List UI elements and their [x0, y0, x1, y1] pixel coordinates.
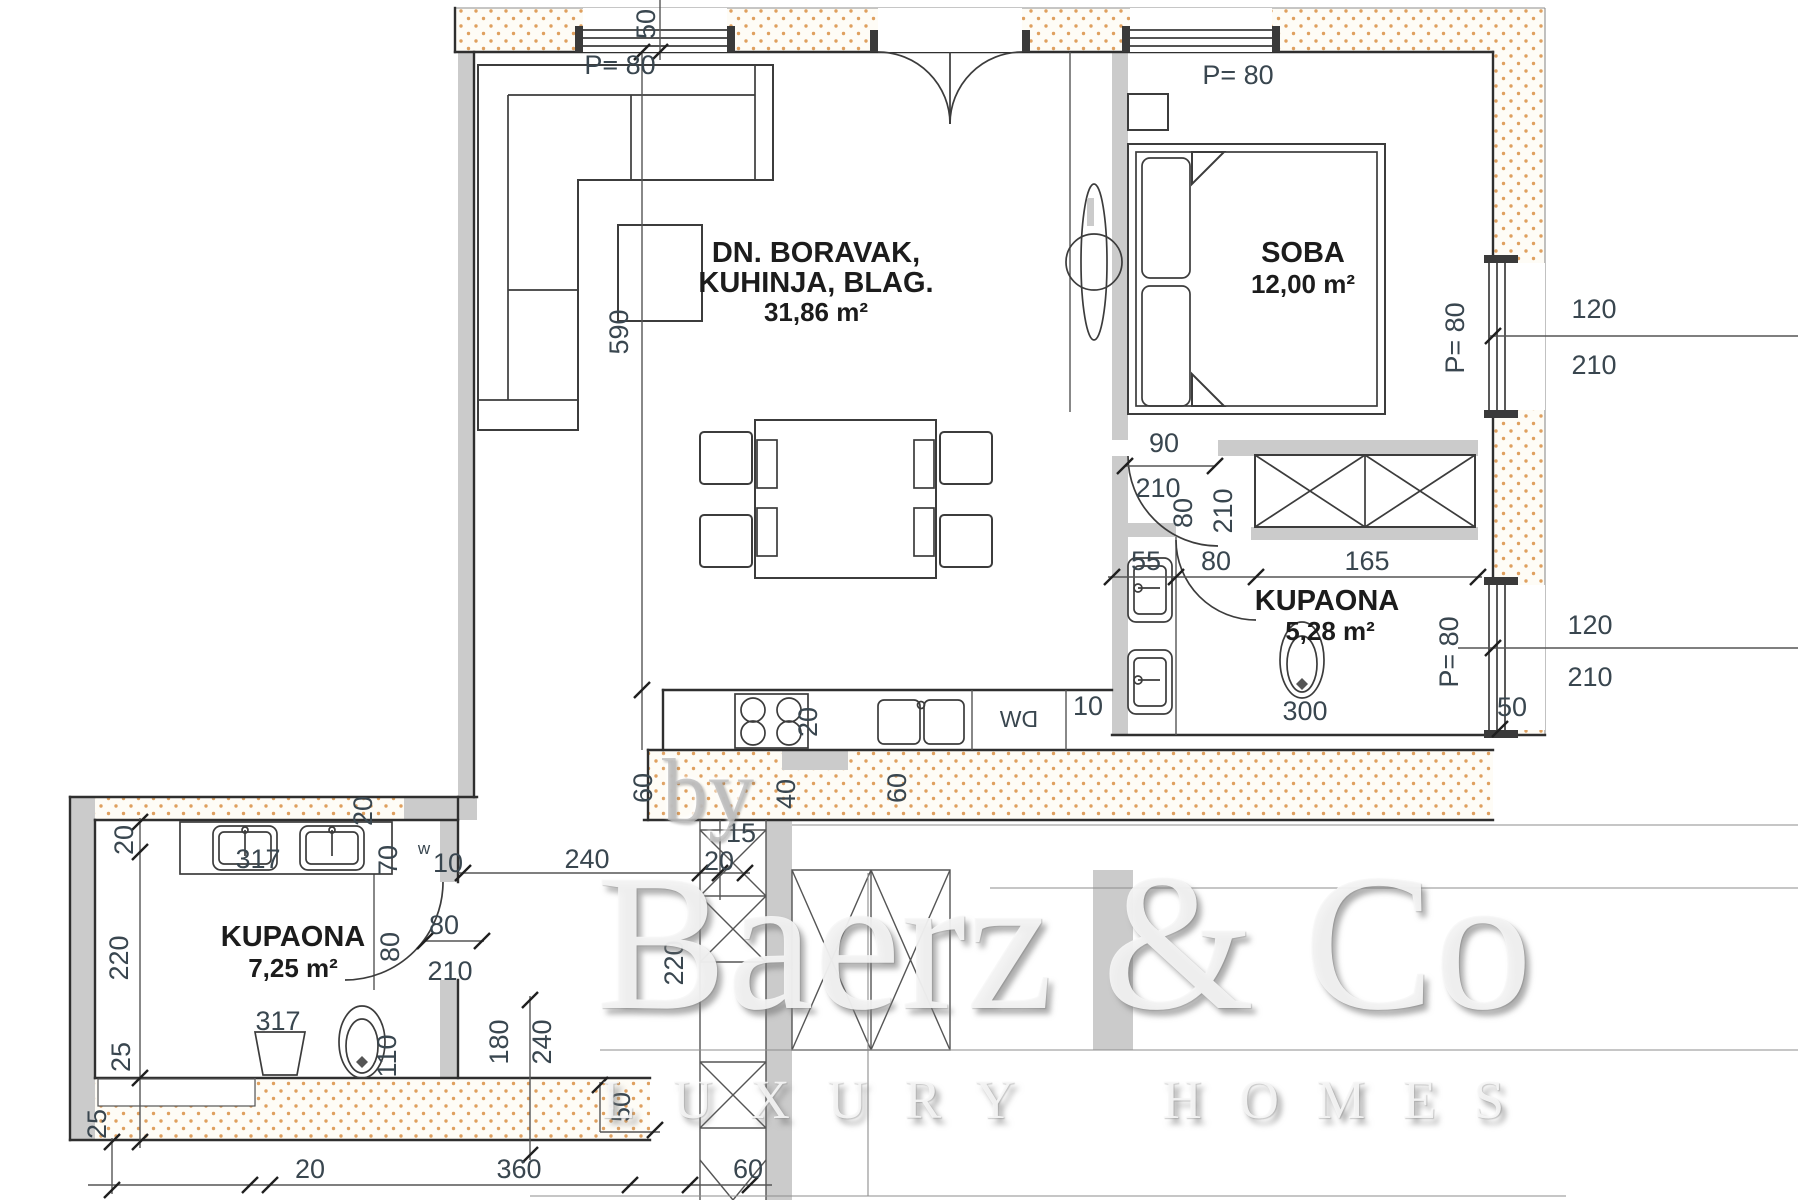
dim-balcony-left: 60: [628, 773, 658, 803]
chair: [700, 515, 752, 567]
entry-door-swing-left: [878, 52, 950, 124]
watermark-by: by: [662, 738, 754, 844]
wall-left-main: [458, 52, 474, 800]
dishwasher-label: DW: [1000, 706, 1039, 732]
wall-closet-left: [1112, 456, 1128, 735]
wall-balcony-pier: [782, 750, 848, 770]
dim-base-20: 20: [295, 1154, 325, 1184]
label-window-right-bath: P= 80: [1434, 616, 1464, 687]
dim-balcony-right: 60: [882, 773, 912, 803]
dim-toilet-code: 300: [1282, 696, 1327, 726]
floor-plan-canvas: DN. BORAVAK, KUHINJA, BLAG. 31,86 m² DW: [0, 0, 1800, 1200]
dim-lower-top: 20: [109, 825, 139, 855]
chair: [940, 515, 992, 567]
dim-toilet-side: 110: [372, 1034, 402, 1077]
bedroom-area: 12,00 m²: [1251, 269, 1355, 299]
wall-right-lower-bottom: [440, 980, 458, 1078]
vanity: [180, 822, 392, 874]
wardrobe: [1255, 455, 1475, 527]
dim-bath2-door-height: 210: [427, 956, 472, 986]
dim-step-a: 180: [484, 1019, 514, 1064]
dining-table: [755, 420, 936, 578]
living-room-area: 31,86 m²: [764, 297, 868, 327]
dim-link-wall: 20: [348, 796, 378, 826]
living-room-name-line2: KUHINJA, BLAG.: [698, 267, 933, 299]
dim-window-bedroom-width: 120: [1571, 294, 1616, 324]
dim-living-depth: 590: [604, 309, 634, 354]
label-window-top-bedroom: P= 80: [1202, 60, 1273, 90]
bathroom2-area: 7,25 m²: [248, 953, 338, 983]
washer-mark: w: [417, 839, 431, 858]
dim-bath2-door-width: 80: [429, 910, 459, 940]
dim-bath1-door-height: 210: [1208, 488, 1238, 533]
dim-window-bath-width: 120: [1567, 610, 1612, 640]
wall-bath1-top: [1251, 527, 1478, 540]
dim-bath2-door-jamb: 80: [375, 932, 405, 962]
chair: [940, 432, 992, 484]
dim-base-60: 60: [733, 1154, 763, 1184]
shower-tray: [255, 1032, 305, 1075]
window-top-bedroom: [1122, 8, 1280, 52]
dim-vanity-side: 70: [373, 845, 403, 875]
dim-base-360: 360: [496, 1154, 541, 1184]
dim-lower-depth: 220: [104, 935, 134, 980]
dim-window-bath-height: 210: [1567, 662, 1612, 692]
dim-floor-width: 317: [255, 1006, 300, 1036]
watermark-brand: Baerz & Co: [596, 845, 1532, 1041]
dim-lower-ledge: 25: [106, 1042, 136, 1072]
entry-door: [870, 8, 1030, 124]
bedroom-name: SOBA: [1261, 237, 1345, 269]
coffee-table: [618, 225, 702, 321]
dim-top-window: 50: [631, 9, 661, 39]
dim-step-b: 240: [527, 1019, 557, 1064]
watermark-tagline: LUXURY HOMES: [602, 1068, 1542, 1131]
dim-bath1-width: 165: [1344, 546, 1389, 576]
dim-closet: 55: [1131, 546, 1161, 576]
dim-vanity-width: 317: [235, 844, 280, 874]
dim-balcony-mid: 40: [771, 779, 801, 809]
dim-lower-edge: 25: [82, 1109, 112, 1139]
wall-partition: [1112, 52, 1128, 440]
wall-left-lower: [70, 797, 95, 1140]
bathroom1-name: KUPAONA: [1255, 585, 1400, 617]
wall-bedroom-bottom: [1218, 440, 1478, 456]
dim-kitchen-niche: 20: [793, 707, 823, 737]
dim-bath1-door-clear: 80: [1201, 546, 1231, 576]
dim-vanity-gap: 10: [433, 848, 463, 878]
dining-set: [700, 420, 992, 578]
kitchen-sink: [878, 700, 964, 744]
washer-sink-bottom: [1128, 650, 1172, 714]
living-room-name-line1: DN. BORAVAK,: [712, 237, 920, 269]
nightstand: [1128, 94, 1168, 130]
dim-right-corner: 50: [1497, 692, 1527, 722]
bathroom2-name: KUPAONA: [221, 921, 366, 953]
label-window-top-living: P= 80: [584, 50, 655, 80]
label-window-right-bedroom: P= 80: [1440, 302, 1470, 373]
dim-window-bedroom-height: 210: [1571, 350, 1616, 380]
dim-bedroom-door-width: 90: [1149, 428, 1179, 458]
dim-closet-gap: 10: [1073, 691, 1103, 721]
bathroom1-area: 5,28 m²: [1285, 616, 1375, 646]
living-room: DN. BORAVAK, KUHINJA, BLAG. 31,86 m²: [478, 65, 992, 578]
dim-bath1-door-width: 80: [1168, 498, 1198, 528]
entry-door-swing-right: [950, 52, 1022, 124]
chair: [700, 432, 752, 484]
